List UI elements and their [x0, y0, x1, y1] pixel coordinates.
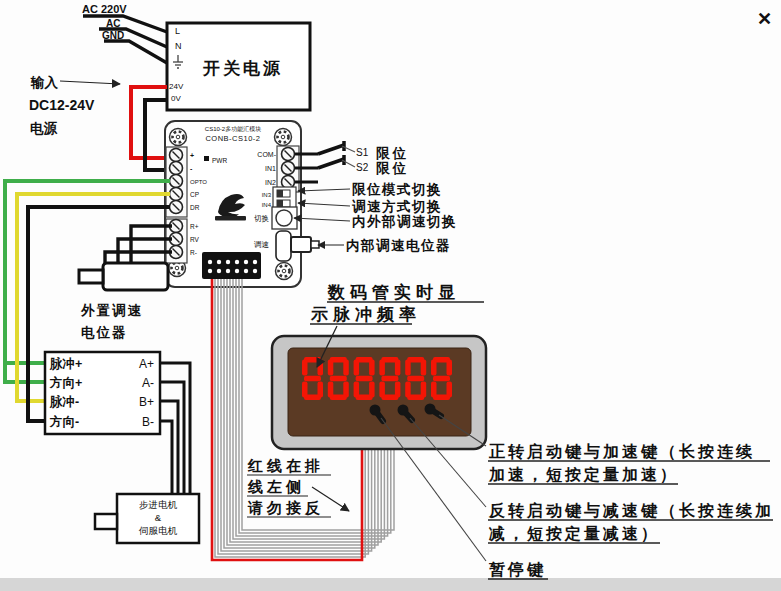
ac-label: AC: [106, 18, 120, 29]
ext-pot-label2: 电位器: [81, 325, 128, 340]
lbl-switch: 切换: [254, 214, 270, 223]
fwd-key-line1: 正转启动键与加速键（长按连续: [488, 442, 755, 461]
dc-input-line1: 输入: [30, 75, 59, 90]
s2-label: S2: [356, 162, 369, 173]
t-dr: DR: [190, 204, 200, 211]
t-in4: IN4: [262, 202, 272, 208]
pwr-label: PWR: [212, 157, 227, 164]
psu-0v-label: 0V: [171, 94, 181, 103]
ribbon-note1: 红线在排: [247, 457, 324, 474]
pause-key-label: 暂停键: [488, 561, 546, 578]
display-note2: 示脉冲频率: [310, 305, 421, 324]
lbl-speed: 调速: [254, 240, 270, 249]
t-in2: IN2: [265, 179, 276, 186]
watermark-x-icon: ✕: [757, 9, 772, 29]
a-minus: A-: [142, 376, 154, 390]
dir-minus: 方向-: [49, 414, 79, 429]
b-minus: B-: [142, 415, 154, 429]
s2-limit-label: 限位: [376, 161, 409, 176]
motor-label2: &: [155, 512, 162, 523]
t-in1: IN1: [265, 165, 276, 172]
motor-label1: 步进电机: [139, 499, 178, 510]
psu-title: 开关电源: [202, 59, 283, 78]
pul-plus: 脉冲+: [49, 356, 82, 371]
t-opto: OPTO: [190, 179, 207, 185]
a-plus: A+: [139, 357, 154, 371]
dir-plus: 方向+: [49, 375, 82, 390]
t-in3: IN3: [262, 192, 272, 198]
ext-pot-label1: 外置调速: [80, 303, 143, 318]
brand-logo-text-bar: [215, 216, 246, 221]
gnd-label: GND: [102, 30, 124, 41]
bottom-band: [0, 578, 781, 591]
s1-label: S1: [356, 147, 369, 158]
t-rv: RV: [190, 236, 200, 243]
dc-input-line2: DC12-24V: [29, 97, 95, 113]
dc-input-line3: 电源: [30, 121, 58, 136]
s1-limit-label: 限位: [376, 146, 409, 161]
fwd-key-line2: 加速，短按定量加速）: [488, 466, 679, 484]
internal-pot-label: 内部调速电位器: [346, 238, 451, 253]
t-rplus: R+: [190, 223, 199, 230]
int-ext-label: 内外部调速切换: [352, 214, 457, 229]
t-plus: +: [190, 152, 194, 159]
board-title-small: CS10-2多功能汇模块: [205, 126, 261, 133]
ribbon-note2: 线左侧: [247, 478, 305, 495]
speed-mode-label: 调速方式切换: [351, 199, 442, 214]
rev-key-line1: 反转启动键与减速键（长按连续加: [488, 501, 774, 520]
motor-label3: 伺服电机: [138, 525, 178, 536]
psu-terminal-n: N: [175, 41, 182, 51]
ac-220v-label: AC 220V: [82, 3, 127, 15]
t-cp: CP: [190, 191, 199, 198]
pwr-led-icon: [204, 156, 209, 161]
psu-24v-label: 24V: [169, 82, 184, 91]
idc-connector: [202, 252, 261, 279]
limit-mode-label: 限位模式切换: [352, 182, 442, 197]
pul-minus: 脉冲-: [49, 394, 79, 409]
b-plus: B+: [139, 395, 154, 409]
display-note1: 数码管实时显: [327, 282, 460, 302]
ribbon-note3: 请勿接反: [247, 499, 324, 516]
t-rminus: R-: [190, 249, 197, 256]
t-com: COM-: [257, 151, 276, 158]
psu-terminal-l: L: [175, 26, 180, 36]
int-ext-switch: [272, 207, 297, 229]
rev-key-line2: 减，短按定量减速）: [488, 525, 660, 543]
wiring-diagram: ✕ AC 220V AC GND L N 24V 0V 开关电源 输入 DC12…: [0, 0, 781, 591]
board-model: CONB-CS10-2: [205, 134, 260, 143]
